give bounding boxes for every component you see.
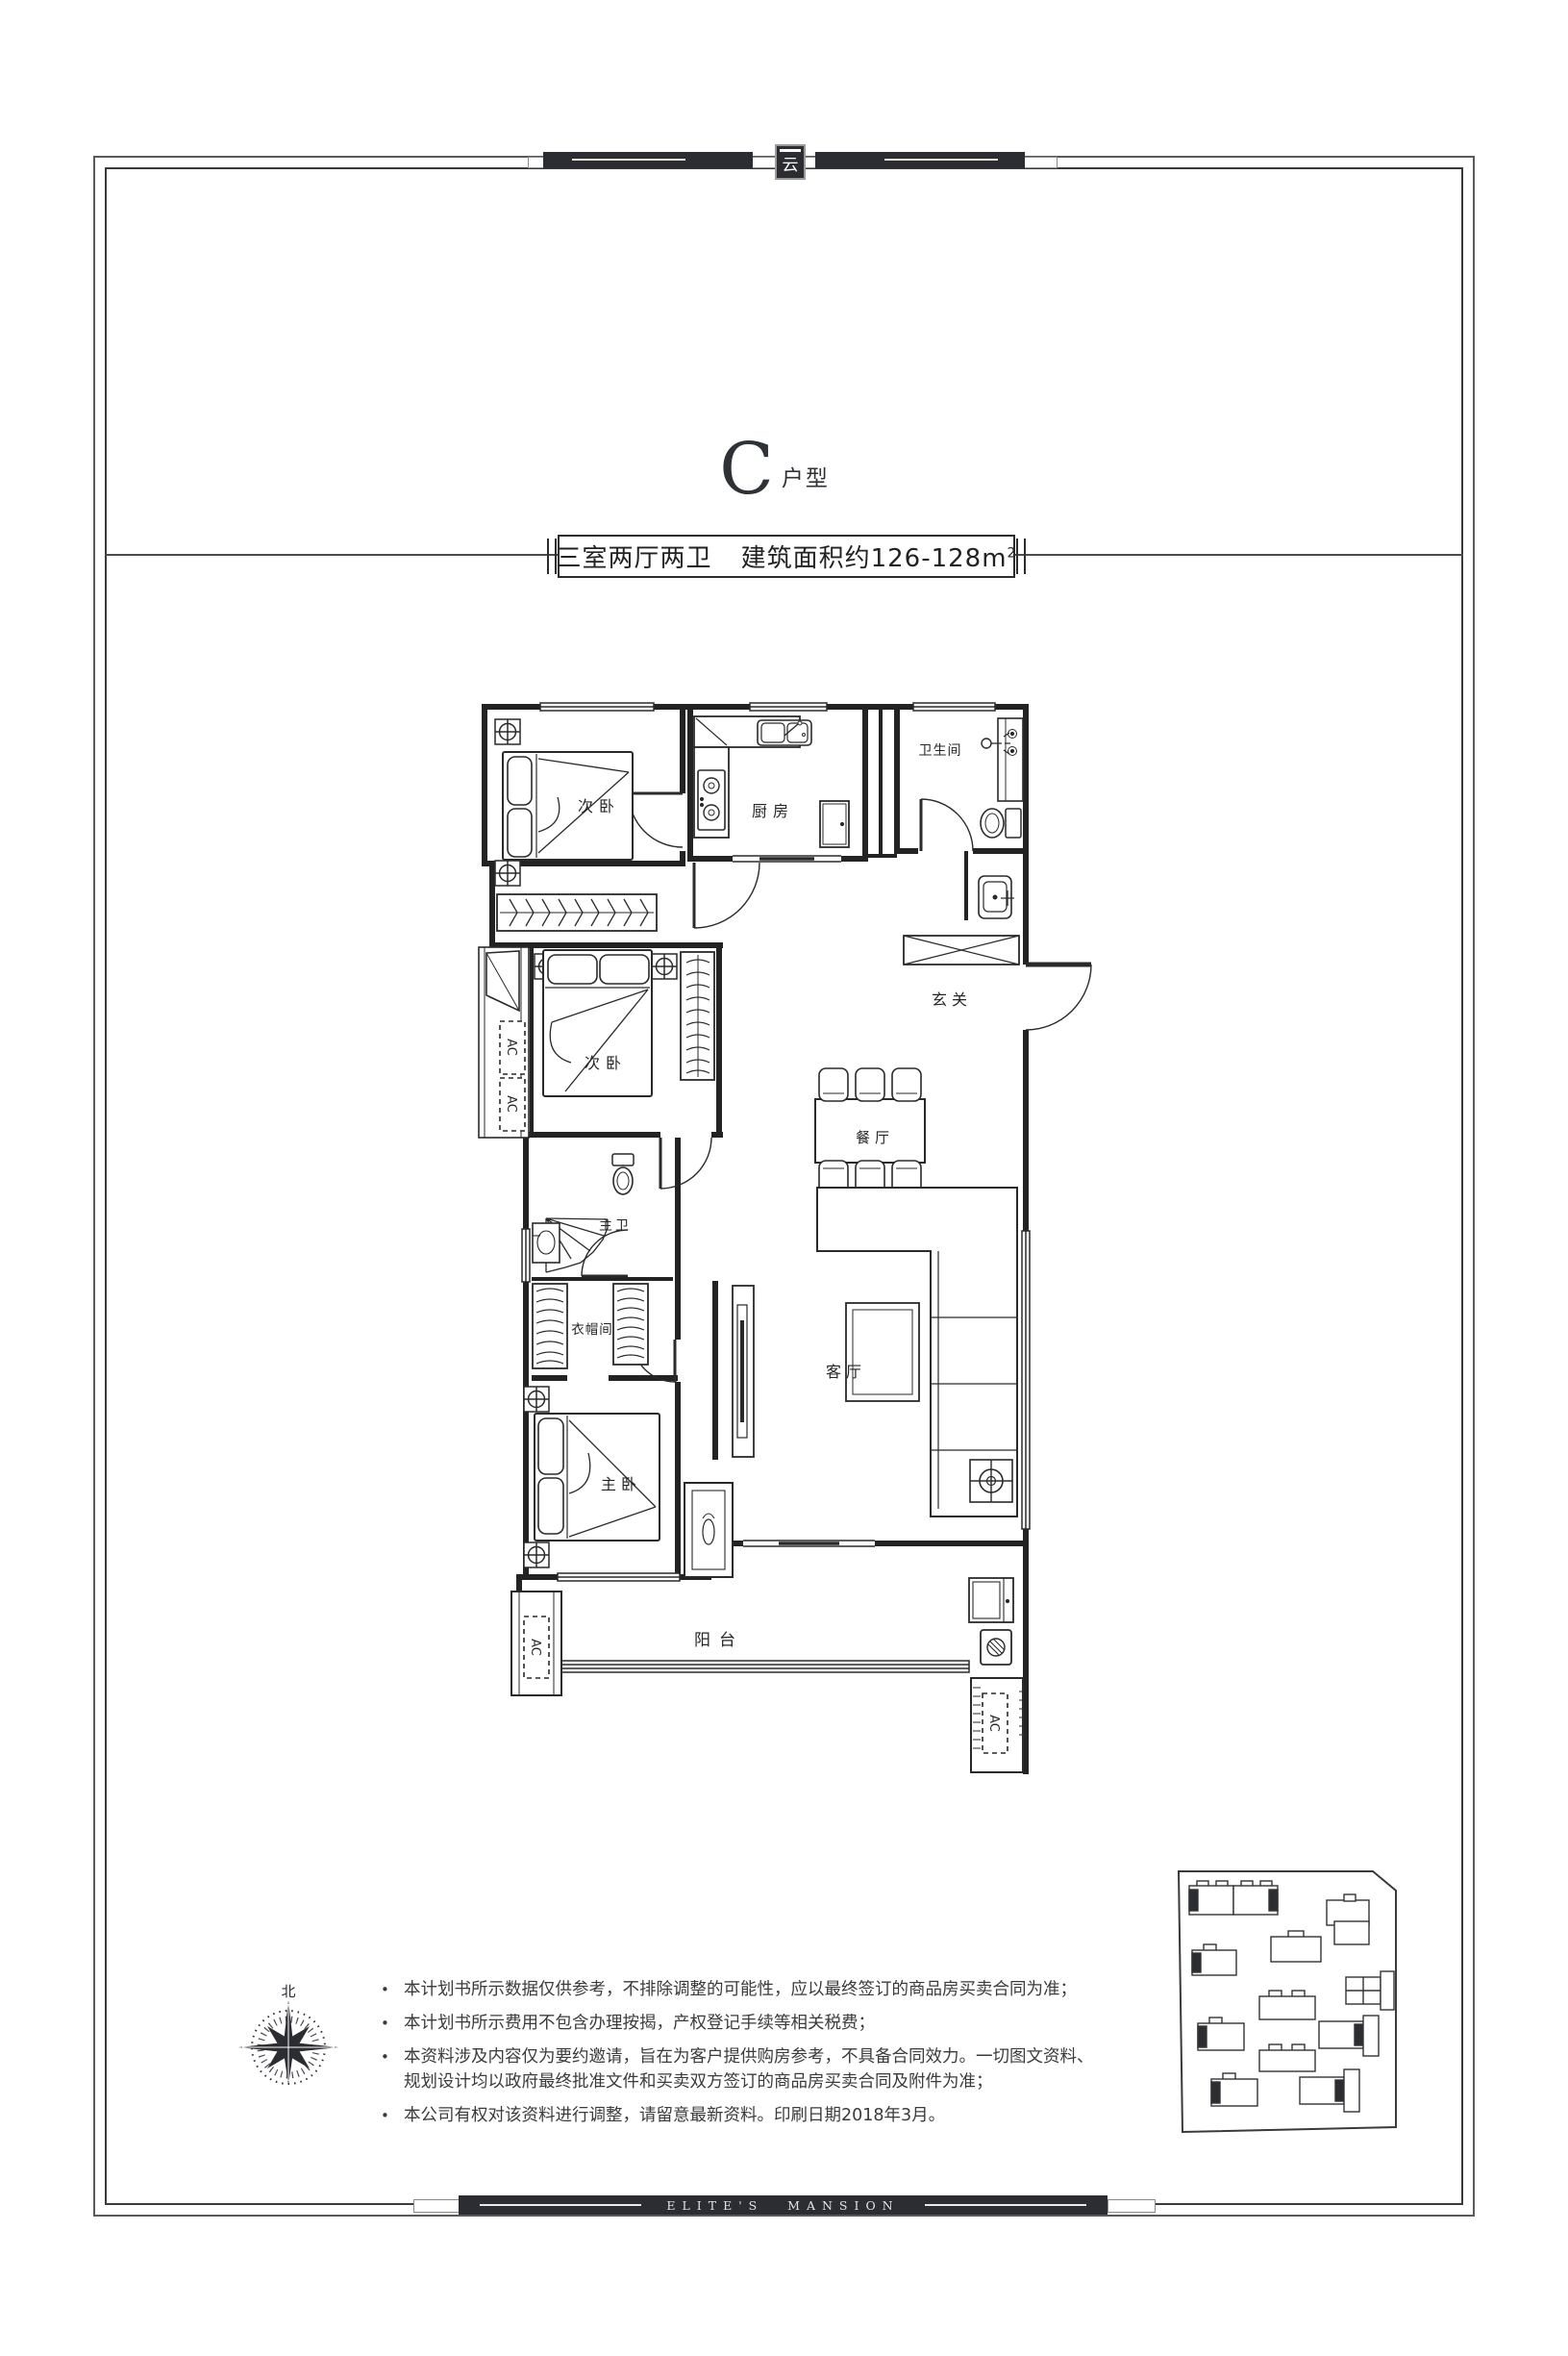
room-label-bathroom: 卫生间 [919, 743, 962, 759]
bullet-icon: • [381, 2103, 404, 2128]
unit-area-sup: 2 [1008, 545, 1017, 561]
ac-unit-bottom-left: AC [511, 1592, 561, 1695]
compass-north-label: 北 [281, 1983, 295, 2000]
siteplan-thumbnail [1165, 1862, 1427, 2150]
ac-unit-bottom-right: AC [971, 1678, 1027, 1772]
footer-brand-text: ELITE'S MANSION [666, 2198, 899, 2213]
tv-cabinet [733, 1286, 754, 1457]
header-bar-right-line [884, 159, 998, 161]
unit-title-letter: C [719, 428, 774, 511]
bullet-icon: • [381, 2044, 404, 2094]
bullet-icon: • [381, 2011, 404, 2036]
footer-endcap-right [1108, 2199, 1156, 2213]
unit-area-text: 建筑面积约126-128m [741, 544, 1008, 573]
footer-line-left [480, 2204, 641, 2206]
room-label-bedroom2: 次卧 [585, 1054, 627, 1072]
banner-endcap-left [547, 539, 557, 574]
banner-endcap-right [1016, 539, 1026, 574]
unit-layout-text: 三室两厅两卫 [557, 544, 712, 573]
kitchen-furniture [694, 716, 849, 847]
unit-spec-banner: 三室两厅两卫建筑面积约126-128m2 [558, 535, 1015, 578]
header-bar-left-line [572, 159, 685, 161]
living-furniture [817, 1188, 1017, 1516]
disclaimer-item: • 本计划书所示费用不包含办理按揭，产权登记手续等相关税费； [381, 2011, 1108, 2036]
brand-logo-topbar [780, 149, 801, 152]
disclaimer-item: • 本资料涉及内容仅为要约邀请，旨在为客户提供购房参考，不具备合同效力。一切图文… [381, 2044, 1108, 2094]
room-label-foyer: 玄关 [932, 990, 972, 1009]
unit-title-suffix: 户型 [782, 466, 830, 491]
footer-brand-bar: ELITE'S MANSION [459, 2195, 1108, 2215]
room-label-master-bedroom: 主卧 [601, 1475, 641, 1493]
brand-logo-icon: 云 [775, 144, 806, 180]
disclaimer-item: • 本计划书所示数据仅供参考，不排除调整的可能性，应以最终签订的商品房买卖合同为… [381, 1977, 1108, 2002]
corridor-cabinet [684, 1483, 733, 1577]
room-label-balcony: 阳台 [694, 1631, 744, 1650]
ac-label-2: AC [504, 1095, 518, 1113]
disclaimer-text-4: 本公司有权对该资料进行调整，请留意最新资料。印刷日期2018年3月。 [404, 2103, 945, 2128]
compass-rose: 北 [229, 1964, 348, 2093]
master-bath-furniture [533, 1154, 634, 1272]
brochure-page: 云 C户型 三室两厅两卫建筑面积约126-128m2 [0, 0, 1568, 2356]
disclaimer-item: • 本公司有权对该资料进行调整，请留意最新资料。印刷日期2018年3月。 [381, 2103, 1108, 2128]
header-bar-right [815, 152, 1025, 168]
room-label-closet: 衣帽间 [571, 1322, 613, 1338]
floor-lamp-symbol [970, 1460, 1012, 1502]
room-label-master-bath: 主卫 [599, 1218, 632, 1234]
bullet-icon: • [381, 1977, 404, 2002]
room-label-bedroom1: 次卧 [578, 797, 620, 815]
header-bar-left [543, 152, 753, 168]
bedroom2-furniture [543, 950, 714, 1096]
room-label-kitchen: 厨房 [752, 802, 794, 820]
floorplan-drawing: AC AC [471, 678, 1106, 1774]
bedroom1-furniture [497, 752, 657, 931]
footer-endcap-left [413, 2199, 461, 2213]
room-label-living: 客厅 [826, 1363, 866, 1381]
footer-line-right [925, 2204, 1086, 2206]
room-label-dining: 餐厅 [856, 1129, 894, 1146]
disclaimer-text-3: 本资料涉及内容仅为要约邀请，旨在为客户提供购房参考，不具备合同效力。一切图文资料… [404, 2044, 1108, 2094]
ac-label-3: AC [528, 1639, 542, 1656]
ac-label-4: AC [986, 1715, 1001, 1732]
disclaimer-text-2: 本计划书所示费用不包含办理按揭，产权登记手续等相关税费； [404, 2011, 875, 2036]
brand-logo-glyph: 云 [777, 155, 804, 176]
unit-title: C户型 [0, 431, 1549, 508]
ac-label-1: AC [504, 1039, 518, 1056]
disclaimer-list: • 本计划书所示数据仅供参考，不排除调整的可能性，应以最终签订的商品房买卖合同为… [381, 1977, 1108, 2137]
balcony-fixtures [969, 1578, 1013, 1665]
disclaimer-text-1: 本计划书所示数据仅供参考，不排除调整的可能性，应以最终签订的商品房买卖合同为准； [404, 1977, 1077, 2002]
unit-spec-text: 三室两厅两卫建筑面积约126-128m2 [557, 539, 1017, 574]
